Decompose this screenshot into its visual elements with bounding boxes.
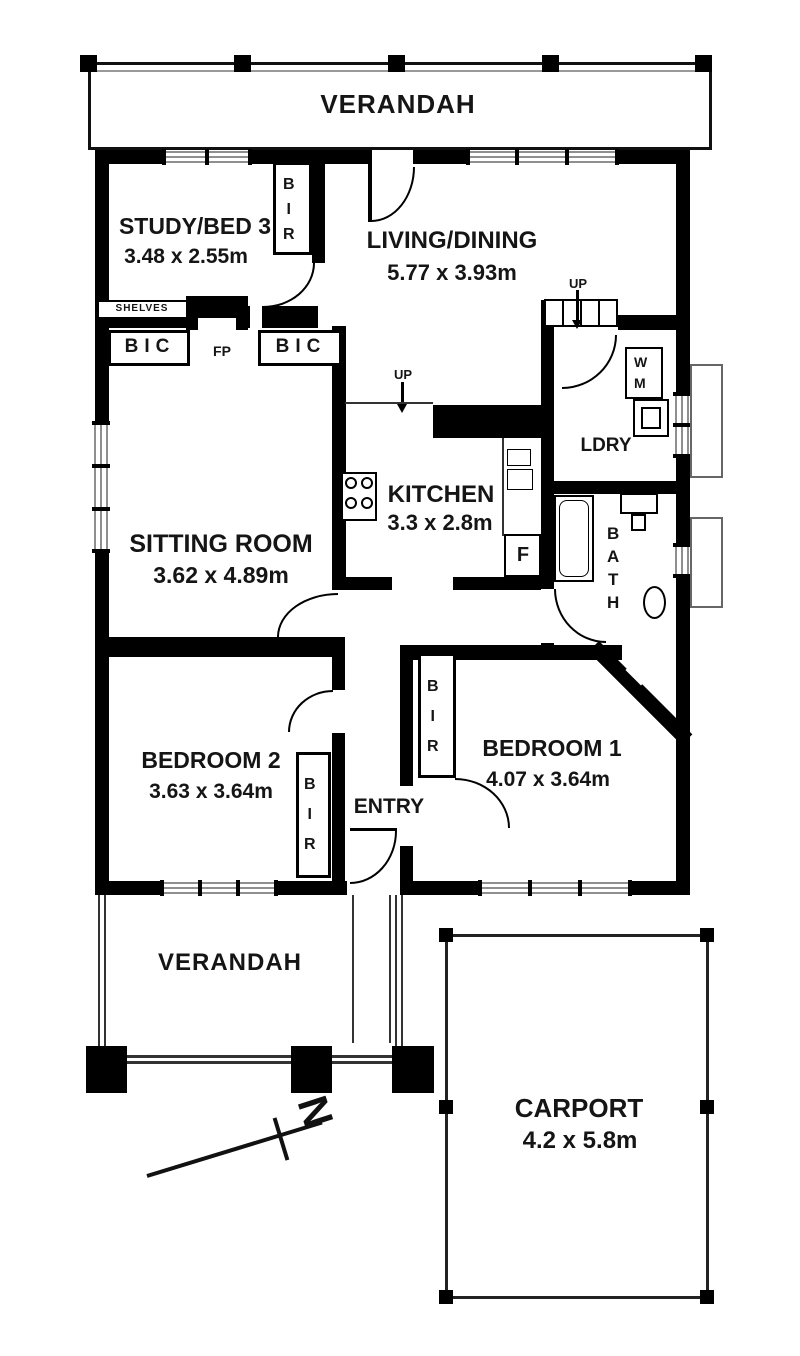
exterior-tank xyxy=(690,517,723,608)
wall xyxy=(332,657,345,690)
bir-label: BIR xyxy=(304,770,316,860)
wall xyxy=(340,577,392,590)
door-arc xyxy=(371,167,415,222)
verandah-top-label: VERANDAH xyxy=(320,90,475,119)
wall xyxy=(332,733,345,895)
room-label-bedroom2: BEDROOM 2 xyxy=(141,748,280,773)
room-dims-bedroom2: 3.63 x 3.64m xyxy=(149,780,273,803)
wall xyxy=(433,405,541,438)
verandah-post xyxy=(542,55,559,72)
wall xyxy=(676,458,690,543)
verandah-edge xyxy=(104,895,106,1047)
fireplace-firebox xyxy=(198,318,236,330)
bathtub-inner xyxy=(559,500,589,577)
door-arc xyxy=(263,263,315,308)
verandah-rail xyxy=(127,1055,291,1058)
wall xyxy=(95,150,109,421)
sink xyxy=(507,449,531,466)
bic-label: BIC xyxy=(125,337,176,358)
wall xyxy=(400,645,413,786)
up-label: UP xyxy=(394,368,412,382)
carport-post xyxy=(439,1100,453,1114)
basin xyxy=(620,493,658,514)
carport-post xyxy=(700,928,714,942)
room-label-living: LIVING/DINING xyxy=(367,228,538,254)
stove-burner xyxy=(361,497,373,509)
room-label-sitting: SITTING ROOM xyxy=(129,531,312,559)
room-dims-study: 3.48 x 2.55m xyxy=(124,245,248,268)
verandah-rail xyxy=(332,1055,392,1058)
fridge-label: F xyxy=(517,544,529,566)
carport-post xyxy=(439,928,453,942)
floor-plan: VERANDAH xyxy=(0,0,800,1356)
carport-post xyxy=(700,1100,714,1114)
room-dims-bedroom1: 4.07 x 3.64m xyxy=(486,768,610,791)
up-arrowhead xyxy=(397,404,407,413)
window xyxy=(93,421,109,553)
verandah-post xyxy=(86,1046,127,1093)
sink xyxy=(507,469,533,490)
path-line xyxy=(389,895,391,1043)
path-line xyxy=(352,895,354,1043)
window xyxy=(160,881,278,895)
bench-line xyxy=(502,438,504,536)
room-dims-carport: 4.2 x 5.8m xyxy=(523,1128,638,1154)
verandah-edge xyxy=(395,895,397,1047)
door-arc xyxy=(554,589,606,643)
wall xyxy=(400,846,413,895)
verandah-bottom-label: VERANDAH xyxy=(158,950,302,976)
up-arrowhead xyxy=(572,320,582,329)
north-arrow-tick xyxy=(273,1117,290,1160)
room-label-carport: CARPORT xyxy=(515,1094,644,1123)
room-label-study: STUDY/BED 3 xyxy=(119,214,271,239)
room-dims-living: 5.77 x 3.93m xyxy=(387,261,517,285)
verandah-edge xyxy=(401,895,403,1047)
verandah-post xyxy=(695,55,712,72)
wall xyxy=(541,300,554,589)
room-label-bath: BATH xyxy=(607,522,619,614)
shelves-label: SHELVES xyxy=(116,303,169,314)
basin-pedestal xyxy=(631,514,646,531)
verandah-post xyxy=(291,1046,332,1093)
bir-label: BIR xyxy=(283,172,295,247)
window xyxy=(466,150,619,164)
wall xyxy=(676,150,690,392)
wall xyxy=(95,637,345,657)
window xyxy=(478,881,632,895)
room-label-laundry: LDRY xyxy=(580,436,631,457)
carport-post xyxy=(439,1290,453,1304)
bir-label: BIR xyxy=(427,672,439,762)
door-arc xyxy=(350,831,397,884)
wall xyxy=(312,158,325,263)
window xyxy=(162,150,252,164)
room-label-entry: ENTRY xyxy=(354,795,424,818)
door-arc xyxy=(277,593,338,637)
room-dims-kitchen: 3.3 x 2.8m xyxy=(387,511,492,535)
window xyxy=(674,543,690,578)
toilet xyxy=(643,586,666,619)
verandah-rail xyxy=(332,1061,392,1064)
wall xyxy=(453,577,541,590)
window xyxy=(674,392,690,458)
laundry-trough-bowl xyxy=(641,407,661,429)
wall xyxy=(618,315,690,330)
stove-burner xyxy=(345,497,357,509)
verandah-post xyxy=(234,55,251,72)
washing-machine-label: WM xyxy=(634,352,644,394)
verandah-post xyxy=(388,55,405,72)
bench-line xyxy=(345,402,433,404)
room-label-bedroom1: BEDROOM 1 xyxy=(482,736,621,761)
stove-burner xyxy=(345,477,357,489)
up-arrow xyxy=(576,290,579,322)
wall xyxy=(413,150,466,164)
verandah-post xyxy=(80,55,97,72)
stove-burner xyxy=(361,477,373,489)
wall xyxy=(262,306,318,328)
north-label: N xyxy=(288,1090,343,1134)
bic-label: BIC xyxy=(276,337,327,358)
door-arc xyxy=(288,690,333,732)
verandah-rail xyxy=(127,1061,291,1064)
carport-post xyxy=(700,1290,714,1304)
exterior-tank xyxy=(690,364,723,478)
wall xyxy=(95,553,109,895)
fireplace-label: FP xyxy=(213,344,231,359)
room-dims-sitting: 3.62 x 4.89m xyxy=(153,563,289,588)
verandah-edge xyxy=(98,895,100,1047)
verandah-post xyxy=(392,1046,434,1093)
room-label-kitchen: KITCHEN xyxy=(388,482,495,508)
door-arc xyxy=(562,335,617,389)
